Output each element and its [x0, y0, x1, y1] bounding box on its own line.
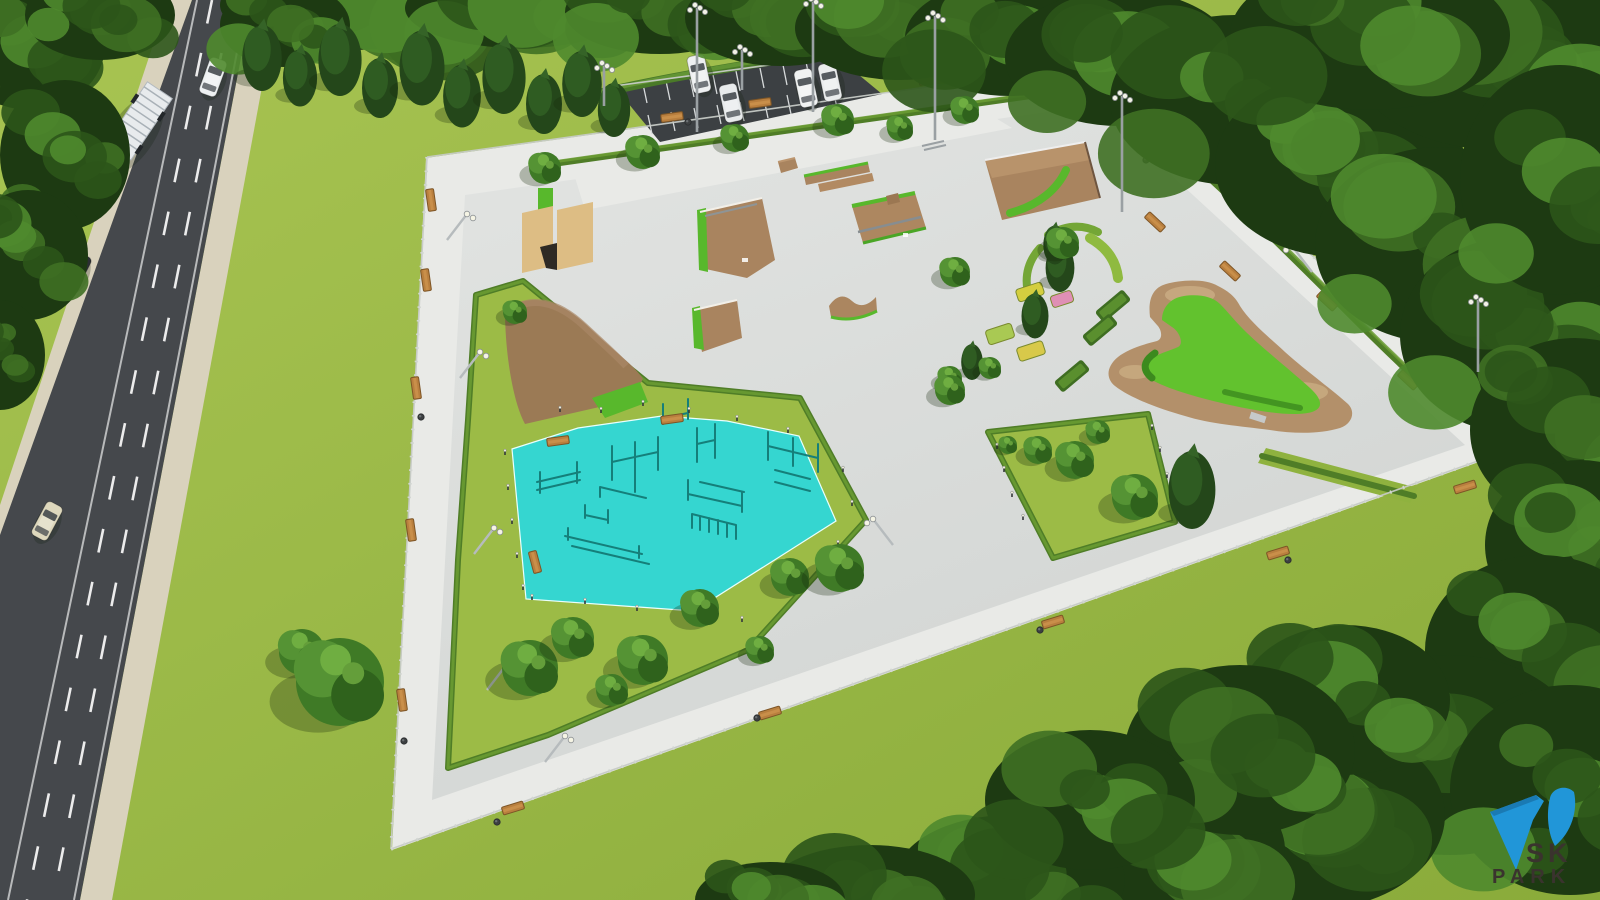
logo-text-line2: PARK	[1492, 866, 1571, 888]
canopy-blob	[28, 8, 70, 41]
lamp-head	[803, 1, 808, 6]
canopy-blob	[1485, 350, 1538, 392]
bank-ramp-large	[697, 198, 775, 278]
trash-bin	[401, 738, 407, 744]
logo-text-line1: SK	[1526, 838, 1572, 868]
lamp-head	[599, 60, 604, 65]
lamp-head	[697, 5, 702, 10]
lamp-head	[813, 0, 818, 5]
lamp-head	[1478, 297, 1483, 302]
lamp-head	[609, 67, 614, 72]
trash-bin	[1037, 627, 1043, 633]
lamp-head	[604, 63, 609, 68]
lamp-head	[925, 15, 930, 20]
canopy-blob	[1458, 223, 1533, 283]
lamp-head	[1127, 97, 1132, 102]
aerial-park-render: SK PARK	[0, 0, 1600, 900]
trash-bin	[1285, 557, 1291, 563]
canopy-blob	[1364, 698, 1433, 753]
canopy-blob	[2, 354, 29, 376]
tan-ramp-right	[557, 202, 593, 270]
lamp-head	[940, 17, 945, 22]
lamp-head	[1473, 294, 1478, 299]
lamp-head	[1468, 299, 1473, 304]
canopy-blob	[39, 262, 88, 301]
canopy-blob	[1317, 274, 1391, 333]
canopy-blob	[1008, 70, 1086, 133]
lamp-head	[930, 10, 935, 15]
canopy-blob	[1525, 492, 1576, 533]
lamp-head	[935, 13, 940, 18]
canopy-blob	[1111, 794, 1206, 870]
lamp-head	[1483, 301, 1488, 306]
lamp-head	[1122, 93, 1127, 98]
canopy-blob	[1211, 714, 1316, 798]
lamp-head	[1117, 90, 1122, 95]
canopy-blob	[1478, 593, 1550, 650]
lamp-head	[687, 7, 692, 12]
trash-bin	[494, 819, 500, 825]
trash-bin	[754, 715, 760, 721]
canopy-blob	[50, 135, 86, 164]
canopy-blob	[1060, 769, 1110, 809]
canopy-blob	[1360, 6, 1460, 86]
lamp-head	[808, 0, 813, 2]
lamp-head	[732, 49, 737, 54]
lamp-head	[742, 47, 747, 52]
lamp-head	[737, 44, 742, 49]
canopy-blob	[1203, 26, 1327, 126]
lamp-head	[692, 2, 697, 7]
lamp-head	[594, 65, 599, 70]
lamp-head	[1112, 95, 1117, 100]
trash-bin	[685, 119, 691, 125]
canopy-blob	[1388, 355, 1481, 429]
canopy-blob	[1331, 154, 1437, 239]
lamp-head	[702, 9, 707, 14]
canopy-blob	[964, 799, 1064, 879]
lamp-head	[818, 3, 823, 8]
scene-svg: SK PARK	[0, 0, 1600, 900]
trash-bin	[418, 414, 424, 420]
canopy-blob	[1098, 109, 1210, 198]
lamp-head	[747, 51, 752, 56]
